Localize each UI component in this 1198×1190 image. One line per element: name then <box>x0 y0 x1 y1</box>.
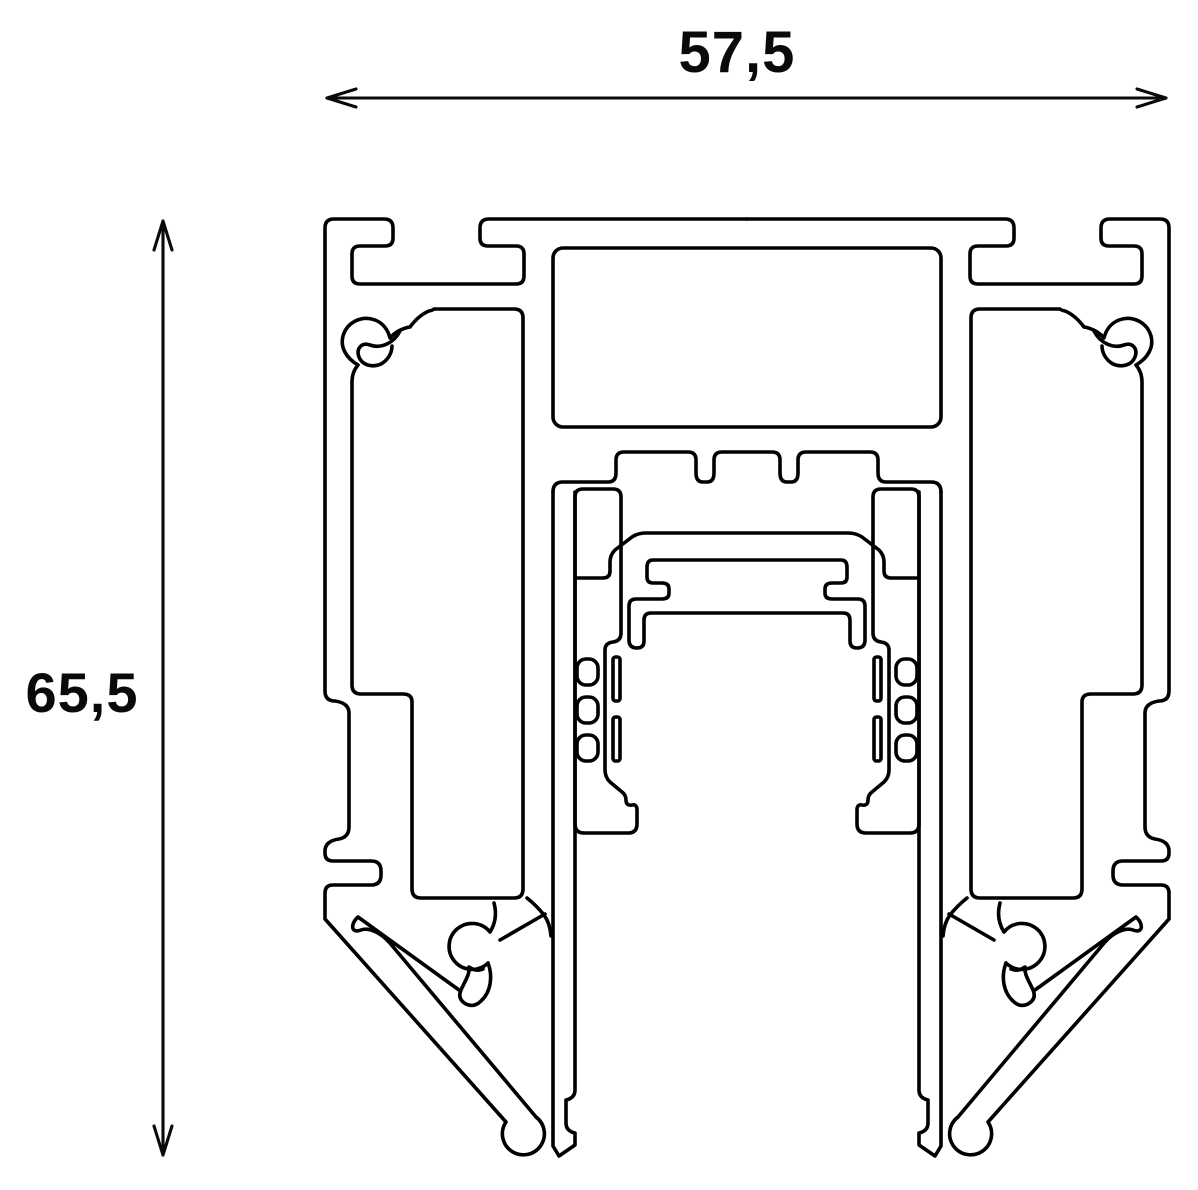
castellated-ceiling <box>553 452 941 492</box>
conductor-contact <box>577 659 598 685</box>
height-dimension-label: 65,5 <box>26 661 139 724</box>
conductor-contact <box>577 697 598 723</box>
trapezoid-web <box>575 533 919 578</box>
channel-wall <box>553 492 575 1156</box>
chamber-floor-line <box>500 898 551 940</box>
conductor-groove <box>613 717 620 761</box>
width-dimension: 57,5 <box>327 20 1166 107</box>
screw-boss-bottom-circle <box>449 903 495 969</box>
width-dimension-label: 57,5 <box>679 20 796 85</box>
retainer-bar <box>629 560 865 648</box>
top-cavity <box>553 248 941 427</box>
height-dimension: 65,5 <box>26 221 173 1155</box>
technical-drawing-canvas: 57,5 65,5 <box>0 0 1198 1190</box>
profile-right-half <box>747 219 1169 1156</box>
side-cavity <box>342 309 523 898</box>
profile-outline <box>325 219 1169 1156</box>
profile-left-half <box>325 219 747 1156</box>
conductor-groove <box>613 657 620 701</box>
profile-cross-section-drawing: 57,5 65,5 <box>0 0 1198 1190</box>
conductor-contact <box>577 735 598 761</box>
